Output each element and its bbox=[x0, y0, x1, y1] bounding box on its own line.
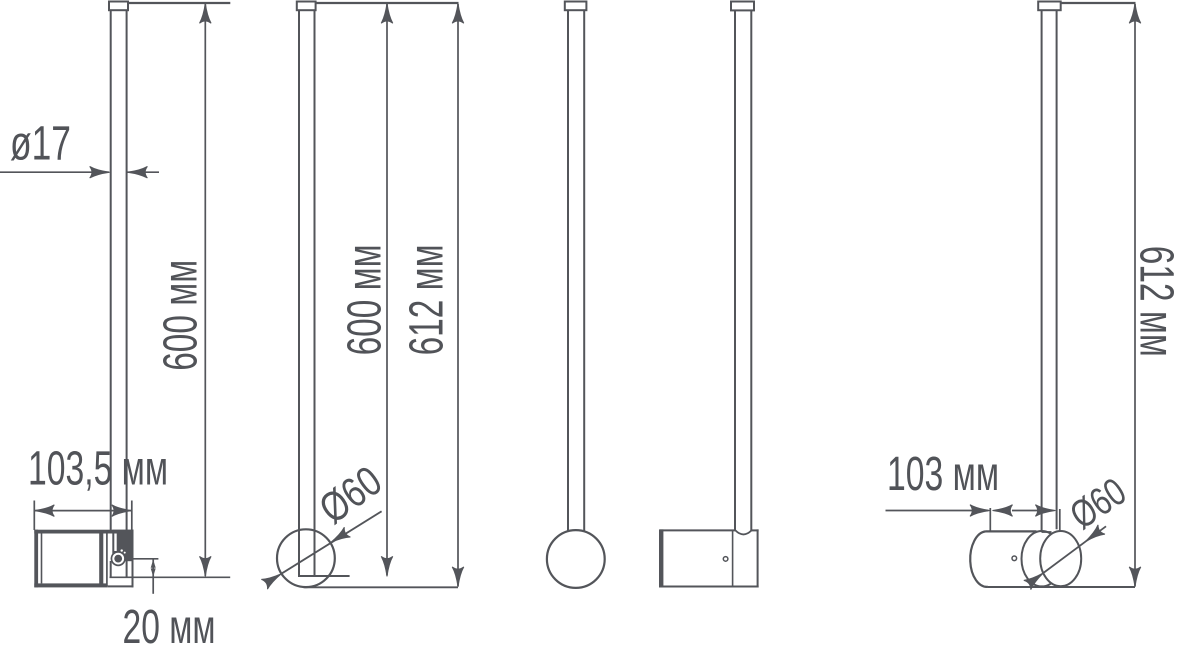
svg-text:600 мм: 600 мм bbox=[338, 244, 391, 355]
svg-text:20 мм: 20 мм bbox=[123, 601, 216, 645]
svg-text:Ø60: Ø60 bbox=[311, 457, 390, 533]
svg-text:Ø60: Ø60 bbox=[1063, 470, 1134, 538]
svg-text:612 мм: 612 мм bbox=[1129, 246, 1181, 357]
svg-text:600 мм: 600 мм bbox=[155, 260, 208, 371]
svg-text:ø17: ø17 bbox=[10, 117, 71, 170]
svg-text:612 мм: 612 мм bbox=[401, 244, 454, 355]
svg-text:103,5 мм: 103,5 мм bbox=[28, 443, 168, 496]
svg-text:103 мм: 103 мм bbox=[887, 448, 999, 501]
